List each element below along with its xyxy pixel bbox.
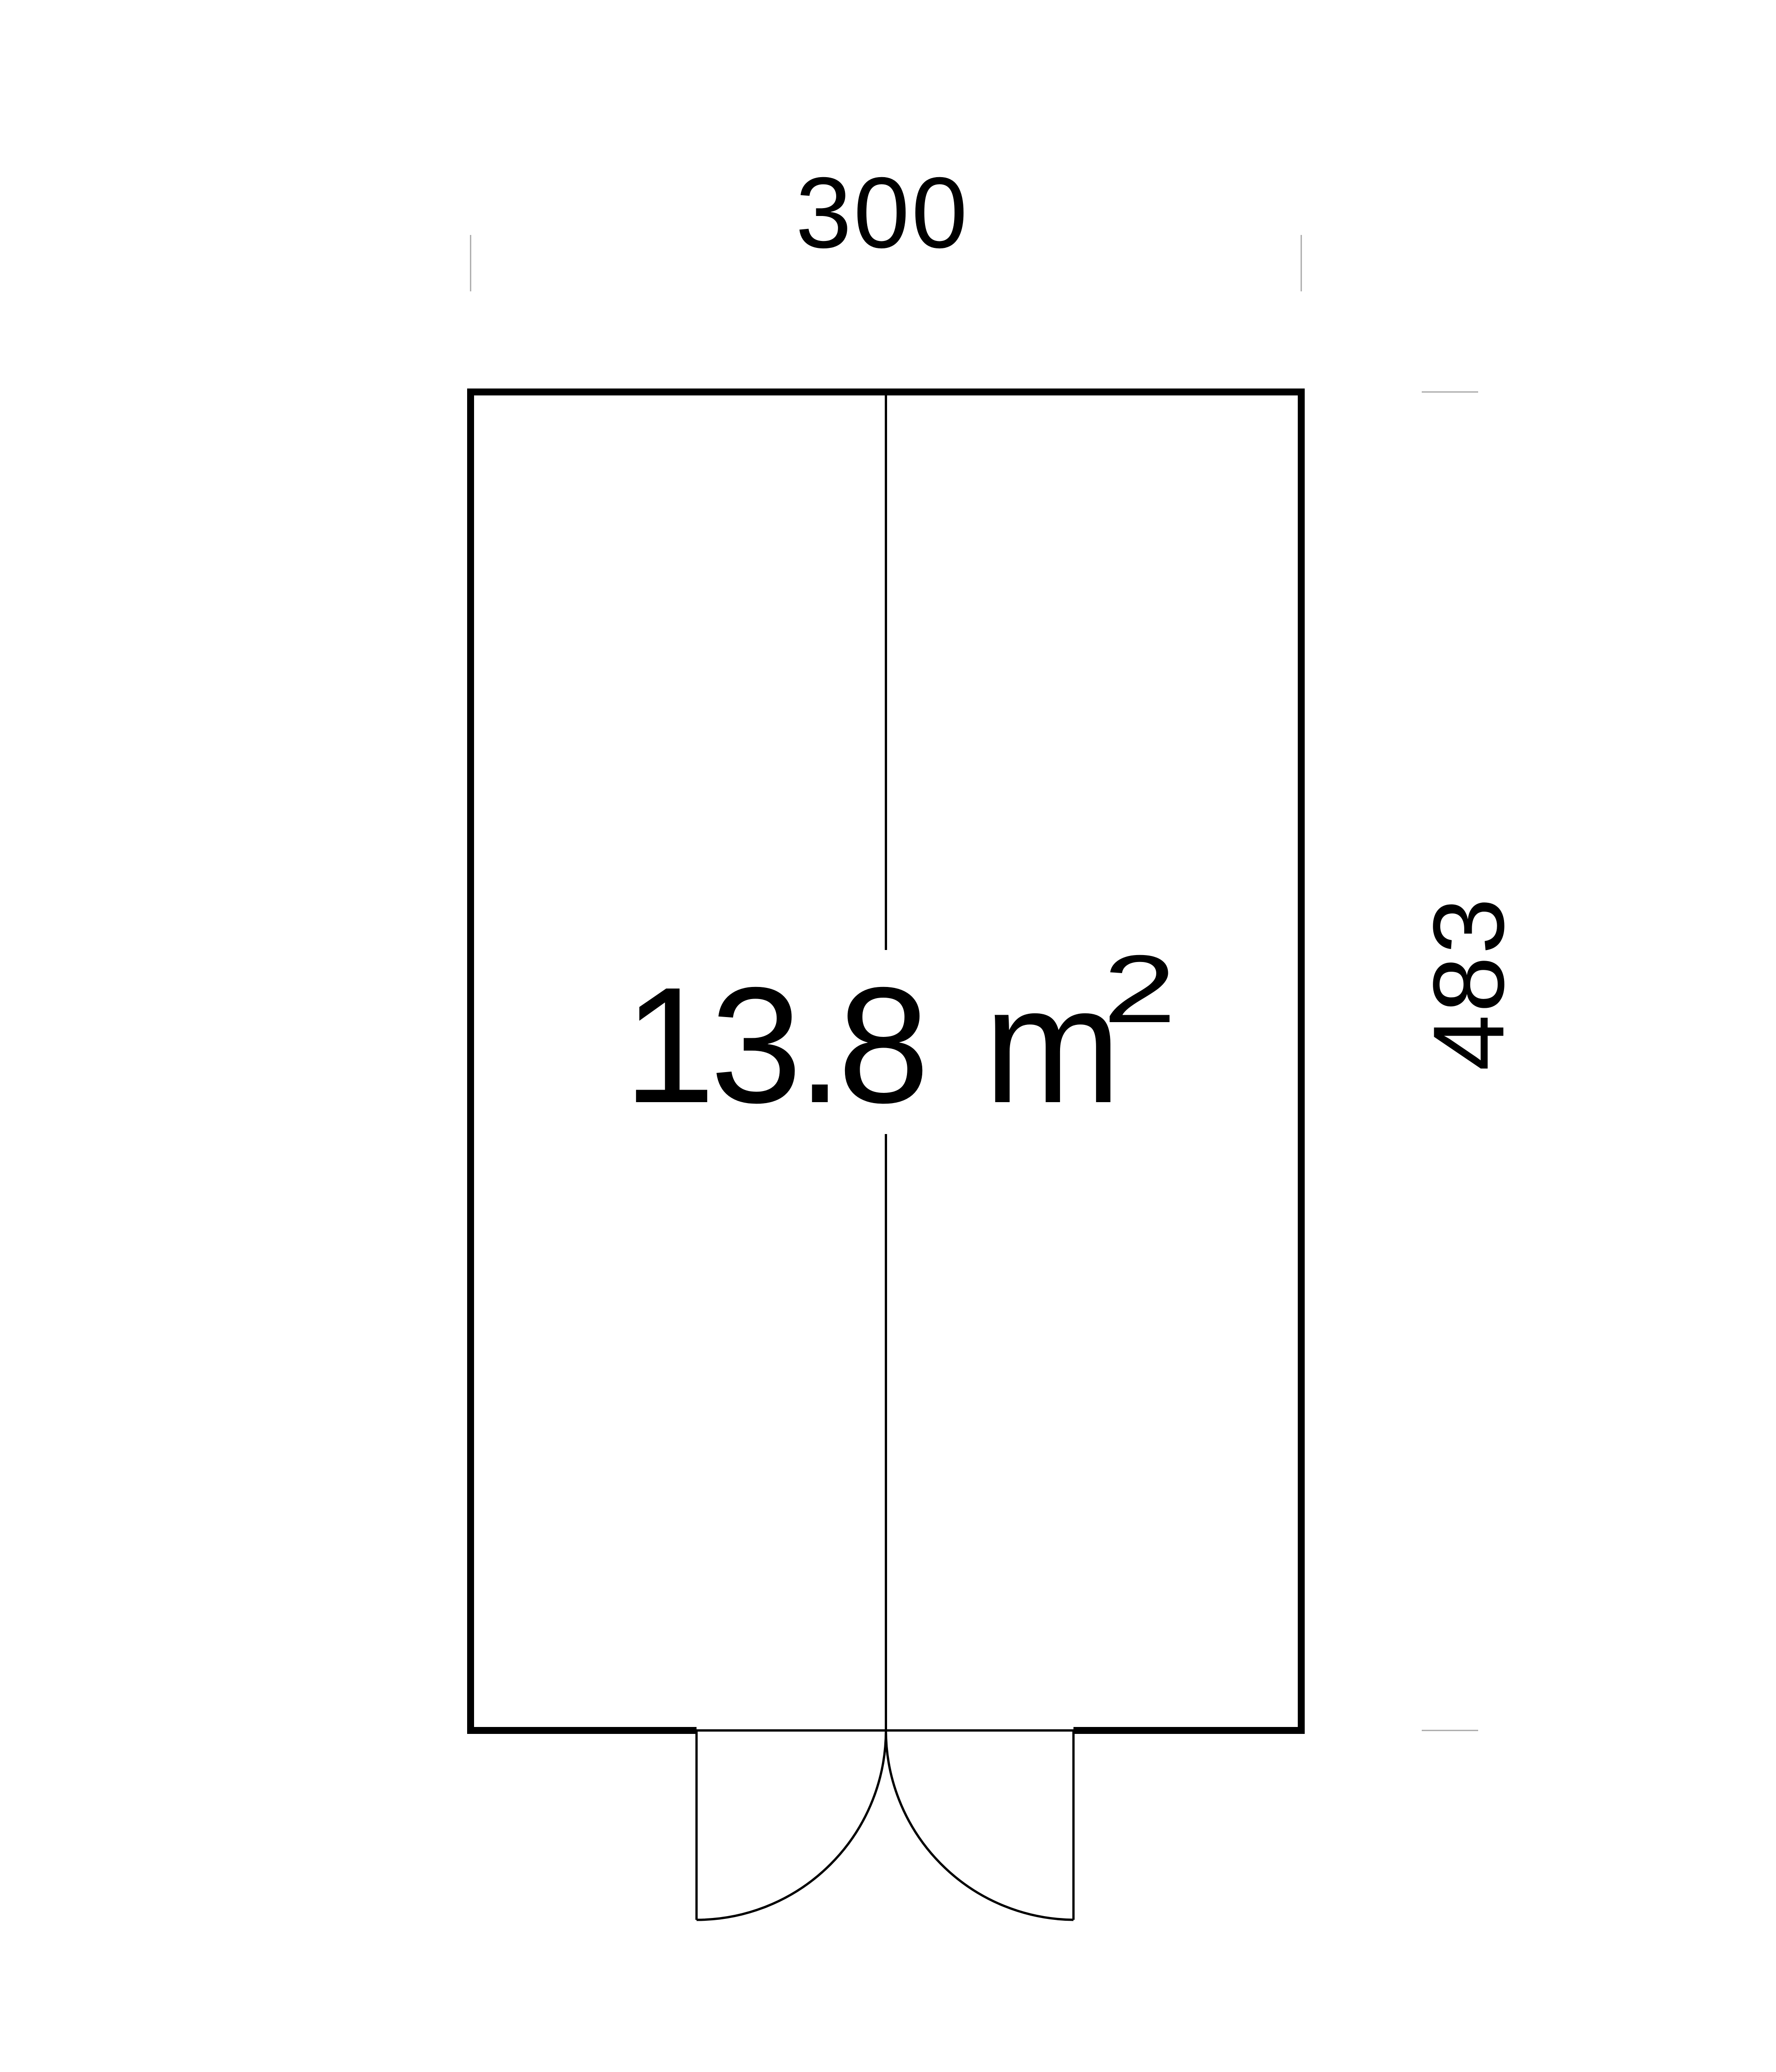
svg-text:483: 483 <box>1413 896 1525 1071</box>
svg-text:13.8 m: 13.8 m <box>623 953 1116 1137</box>
svg-text:2: 2 <box>1103 936 1176 1043</box>
svg-text:300: 300 <box>795 157 969 269</box>
